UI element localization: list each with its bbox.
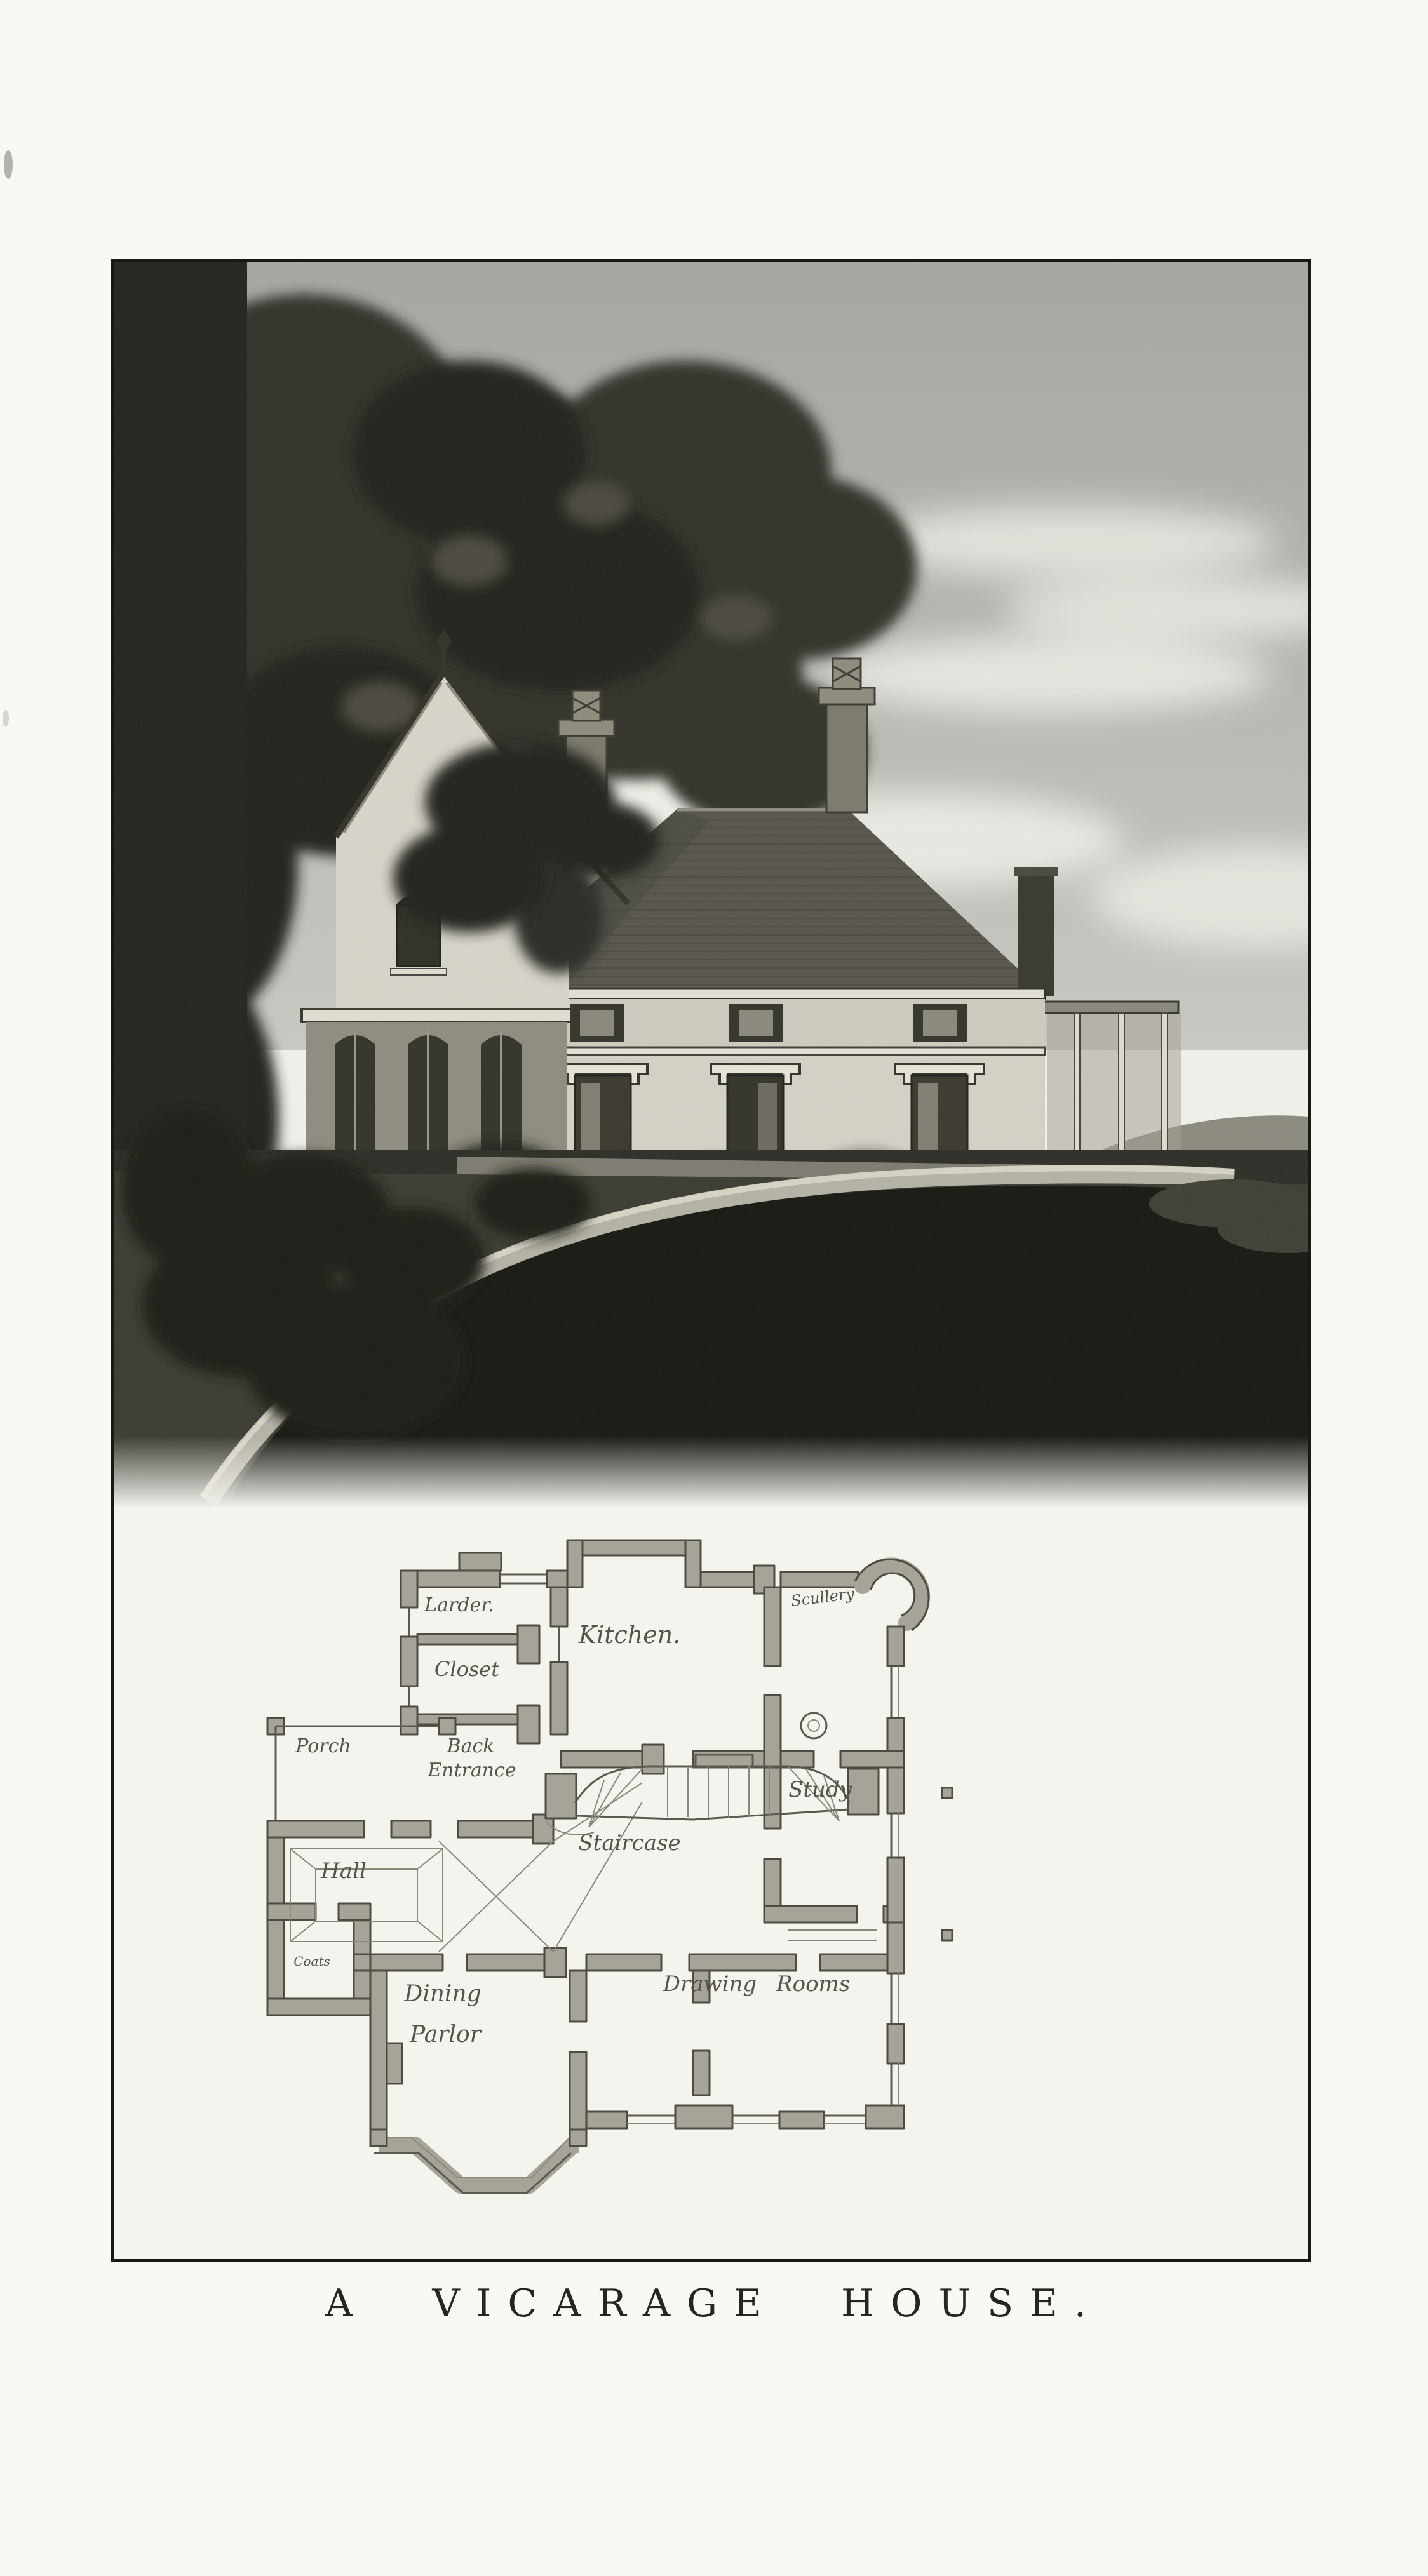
room-label-hall: Hall <box>320 1858 367 1884</box>
vicarage-elevation-illustration <box>114 262 1308 1507</box>
scan-speck <box>3 710 9 727</box>
lobby-cross-lines <box>439 1783 642 1952</box>
room-label-porch: Porch <box>295 1735 351 1757</box>
veranda-post-symbol <box>942 1930 952 1940</box>
room-label-kitchen: Kitchen. <box>578 1621 681 1649</box>
room-label-drawing-rooms: Drawing Rooms <box>663 1971 850 1997</box>
room-label-dining-1: Dining <box>403 1981 481 2007</box>
engraved-plate: Larder. Closet Kitchen. Scullery Porch B… <box>111 259 1311 2262</box>
scan-speck <box>4 150 13 179</box>
aquatint-grain <box>114 262 1308 1507</box>
veranda-post-symbol <box>942 1788 952 1798</box>
room-label-back-entrance-2: Entrance <box>427 1759 516 1781</box>
room-label-back-entrance-1: Back <box>447 1735 495 1757</box>
ground-floor-plan: Larder. Closet Kitchen. Scullery Porch B… <box>248 1516 973 2202</box>
ground-floor-plan-wrap: Larder. Closet Kitchen. Scullery Porch B… <box>248 1516 973 2204</box>
room-label-study: Study <box>788 1777 852 1802</box>
room-label-larder: Larder. <box>424 1594 494 1616</box>
room-label-staircase: Staircase <box>578 1830 680 1856</box>
plate-caption: A VICARAGE HOUSE. <box>0 2281 1428 2326</box>
room-label-closet: Closet <box>434 1657 499 1681</box>
scanned-book-page: Larder. Closet Kitchen. Scullery Porch B… <box>0 0 1428 2576</box>
room-label-scullery: Scullery <box>790 1585 856 1610</box>
room-label-dining-2: Parlor <box>409 2022 482 2048</box>
room-label-coats: Coats <box>293 1954 330 1969</box>
